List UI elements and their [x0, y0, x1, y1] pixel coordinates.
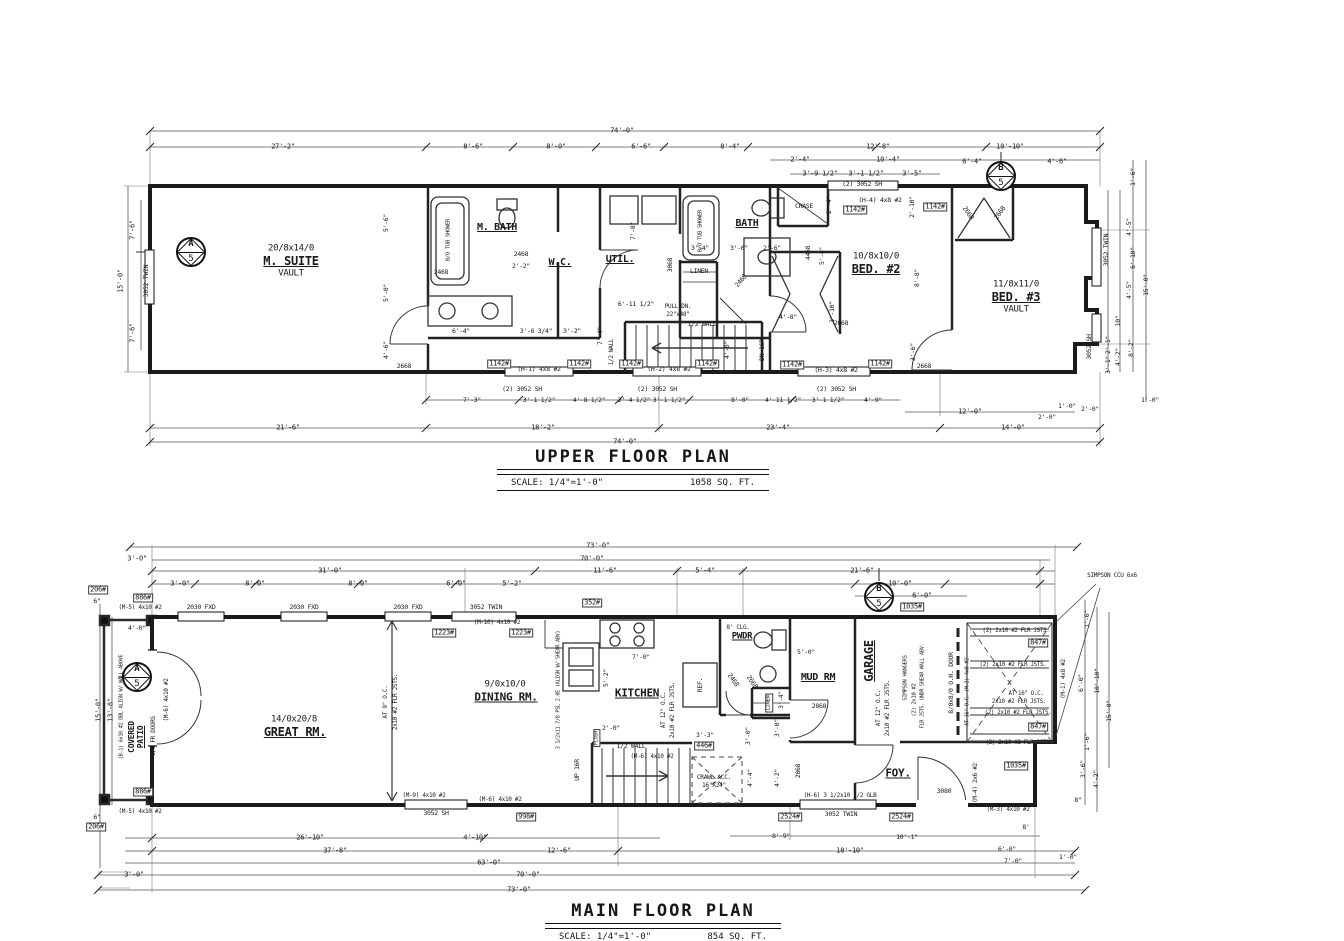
dim-label: 3052 SH [1086, 334, 1093, 359]
dim-label: 1/2 WALL [688, 321, 717, 328]
dim-label: 3'-1 1/2" [523, 397, 556, 404]
dim-label: 7'-6" [130, 323, 137, 343]
dim-label: 4'-10" [463, 835, 487, 842]
dim-label: 2'-0" [1038, 414, 1056, 421]
load-tag: 206# [88, 586, 108, 595]
load-tag: LINEN [765, 693, 773, 712]
main-plan-title: MAIN FLOOR PLAN [545, 901, 781, 921]
dim-label: 3'-1 1/2" [848, 171, 883, 178]
load-tag: 847# [1028, 723, 1048, 732]
dim-label: 3'-6 3/4" [520, 328, 553, 335]
dim-label: (H-4) 4x8 #2 [858, 197, 901, 204]
dim-label: 14/0x20/8 [271, 716, 317, 725]
dim-label: 10'-1" [896, 834, 918, 841]
dim-label: 2'-6" [763, 245, 781, 252]
dim-label: 3080 [937, 788, 951, 795]
dim-label: 21'-6" [850, 568, 874, 575]
dim-label: 73'-0" [507, 887, 531, 894]
dim-label: VAULT [278, 270, 304, 279]
dim-label: 4'-0" [128, 625, 146, 632]
dim-label: 2468 [726, 672, 740, 688]
dim-label: 3'-3" [696, 732, 714, 739]
dim-label: 2'-4" [826, 196, 833, 214]
dim-label: 2868 [795, 764, 802, 778]
dim-label: 4'-8" [779, 314, 797, 321]
dim-label: 7'-6" [130, 220, 137, 240]
dim-label: (2) 2x10 #2 FLR JSTS. [983, 629, 1050, 635]
dim-label: 16"X24" [702, 783, 726, 789]
dim-label: 4'-2" [774, 769, 781, 787]
dim-label: 6'-4" [962, 159, 982, 166]
upper-title-block: UPPER FLOOR PLAN SCALE: 1/4"=1'-0" 1058 … [497, 447, 769, 491]
dim-label: 70'-0" [580, 556, 604, 563]
dim-label: 2868 [812, 703, 826, 710]
dim-label: 11'-6" [593, 568, 617, 575]
dim-label: 12'-8" [866, 144, 890, 151]
dim-label: 13'-8" [108, 698, 115, 722]
dim-label: AT 12" O.C. [661, 692, 667, 728]
dim-label: 1'-0" [1141, 397, 1159, 404]
dim-label: 3'-9 1/2" [802, 171, 837, 178]
dim-label: 2x10 #2 FLR JSTS. [670, 682, 676, 738]
dim-label: 3 1/2x11 7/8 PSL 2.0E (ALIGN W/ SHEAR AB… [556, 631, 561, 750]
dim-label: 3'-0" [774, 719, 781, 737]
dim-label: 2x10 #2 FLR JSTS. [393, 674, 399, 730]
dim-label: 15'-0" [118, 269, 125, 293]
dim-label: 14'-0" [1001, 425, 1025, 432]
dim-label: 74'-0" [610, 128, 634, 135]
load-tag: 1223# [509, 629, 533, 638]
dim-label: (H-3) 4x8 #2 [814, 367, 857, 374]
dim-label: 2030 FXD [187, 604, 216, 611]
load-tag: FLUSH [593, 729, 600, 747]
dim-label: 1/2 WALL [609, 339, 615, 366]
dim-label: (M-5) 4x10 #2 [118, 809, 161, 815]
room-label: BED. #2 [852, 263, 900, 275]
load-tag: 352# [582, 599, 602, 608]
dim-label: 3052 SH [423, 810, 448, 817]
dim-label: (2) 3052 SH [816, 386, 856, 393]
dim-label: 2668 [917, 363, 931, 370]
dim-label: 1'-6" [1084, 733, 1091, 751]
dim-label: UP 16R [574, 759, 581, 781]
dim-label: 6'-6" [631, 144, 651, 151]
dim-label: 5'-2" [502, 581, 522, 588]
drawing-sheet: 74'-0"27'-2"8'-6"8'-0"6'-6"8'-4"12'-8"10… [0, 0, 1344, 941]
dim-label: 12'-0" [958, 409, 982, 416]
section-marker: A5 [122, 662, 152, 692]
load-tag: 2524# [889, 813, 913, 822]
main-plan-scale: SCALE: 1/4"=1'-0" [559, 932, 651, 941]
dim-label: 22"x48" [666, 312, 689, 318]
room-label: GREAT RM. [264, 726, 326, 738]
dim-label: 3'-0" [124, 872, 144, 879]
dim-label: 3'-0" [170, 581, 190, 588]
dim-label: 4'-2" [1115, 348, 1122, 366]
dim-label: 4'-2" [1093, 770, 1100, 788]
dim-label: (2) 2x10 #2 [912, 683, 918, 716]
dim-label: 2'-0" [1081, 406, 1099, 413]
dim-label: (2) 3052 SH [502, 386, 542, 393]
upper-plan-area: 1058 SQ. FT. [690, 478, 755, 488]
dim-label: 2668 [745, 674, 759, 690]
room-label: BATH [736, 219, 759, 229]
dim-label: 2468 [514, 251, 528, 258]
dim-label: 8/0x8/0 O.H. DOOR [948, 652, 955, 713]
dim-label: AT 16" O.C. (M-2) 4x8 #2 [965, 658, 970, 726]
dim-label: (M-6) 4x10 #2 [164, 678, 170, 721]
dim-label: VAULT [1003, 306, 1029, 315]
dim-label: (H-6) 3 1/2x10 1/2 GLB [804, 793, 877, 799]
dim-label: 4'-9" [864, 397, 882, 404]
dim-label: LINEN [690, 268, 708, 275]
dim-label: (M-3) 4x10 #2 [986, 807, 1029, 813]
dim-label: 5'-2" [603, 669, 610, 687]
room-label: PATIO [137, 726, 145, 749]
dim-label: 5'-6" [383, 214, 390, 232]
dim-label: 3'-4" [778, 691, 785, 709]
dim-label: REF. [697, 678, 704, 692]
dim-label: 2'-1" [1105, 336, 1112, 354]
dim-label: 7'-0" [1004, 858, 1022, 865]
dim-label: 18'-10" [836, 848, 863, 855]
dim-label: 1/2 WALL [617, 743, 646, 750]
dim-label: 27'-2" [271, 144, 295, 151]
dim-label: 8'-6" [463, 144, 483, 151]
dim-label: 6'-4" [452, 328, 470, 335]
upper-plan-scale: SCALE: 1/4"=1'-0" [511, 478, 603, 488]
dim-label: 5'-4" [695, 568, 715, 575]
dim-label: 10" [1115, 316, 1122, 327]
dim-label: 10'-4" [876, 157, 900, 164]
load-tag: 1223# [432, 629, 456, 638]
dim-label: 4'-4" [747, 769, 754, 787]
room-label: GARAGE [863, 640, 875, 682]
load-tag: 1035# [900, 603, 924, 612]
dim-label: 6'-0" [998, 846, 1016, 853]
dim-label: 4'-6" [383, 341, 390, 359]
load-tag: 1035# [1004, 762, 1028, 771]
dim-label: 4'-6" [1047, 159, 1067, 166]
dim-label: 3'-1 1/2" [653, 397, 686, 404]
upper-title-sub: SCALE: 1/4"=1'-0" 1058 SQ. FT. [497, 475, 769, 491]
dim-label: 8'-0" [348, 581, 368, 588]
dim-label: 74'-0" [613, 439, 637, 446]
dim-label: AT 16" O.C. [1008, 692, 1043, 698]
dim-label: 3'-4" [691, 245, 709, 252]
dim-label: 2668 [993, 205, 1007, 221]
upper-plan-title: UPPER FLOOR PLAN [497, 447, 769, 467]
dim-label: 2'-4 1/2" [618, 397, 651, 404]
load-tag: 1142# [567, 360, 591, 369]
dim-label: 2x10 #2 FLR JSTS. [885, 680, 891, 736]
dim-label: 9/0x10/0 [485, 681, 526, 690]
load-tag: 446# [694, 742, 714, 751]
dim-label: 7'-0" [632, 654, 650, 661]
dim-label: DN 16R [759, 339, 766, 361]
dim-label: 70'-0" [516, 872, 540, 879]
dim-label: 8' CLG. [726, 625, 749, 631]
load-tag: 1142# [923, 203, 947, 212]
dim-label: 6/0 FR DOORS [151, 716, 157, 756]
dim-label: 15'-0" [1143, 274, 1150, 296]
room-label: BED. #3 [992, 291, 1040, 303]
dim-label: 2'-2" [512, 263, 530, 270]
dim-label: 4'-0" [724, 341, 731, 359]
load-tag: 1142# [695, 360, 719, 369]
dim-label: (H-2) 4x8 #2 [647, 366, 690, 373]
dim-label: 5'-4" [819, 247, 826, 265]
dim-label: 6'-0" [446, 581, 466, 588]
dim-label: 2668 [834, 320, 848, 327]
dim-label: 2468 [434, 269, 448, 276]
dim-label: (M-5) 4x10 #2 [118, 605, 161, 611]
dim-label: 26'-10" [296, 835, 323, 842]
dim-label: 3052 TWIN [825, 811, 858, 818]
dim-label: 4468 [805, 246, 812, 260]
dim-label: 18'-2" [531, 425, 555, 432]
dim-label: 2668 [397, 363, 411, 370]
dim-label: (M-10) 4x10 #2 [474, 620, 520, 626]
load-tag: 886# [133, 788, 153, 797]
dim-label: 3'-2" [563, 328, 581, 335]
load-tag: 206# [86, 823, 106, 832]
dim-label: 3052 TWIN [1103, 234, 1110, 267]
dim-label: 4'-5" [1126, 281, 1133, 299]
dim-label: 8" [1074, 797, 1081, 804]
dim-label: 4'-11 1/2" [765, 397, 801, 404]
dim-label: 10'-10" [1094, 668, 1101, 693]
room-label: FOY. [885, 768, 910, 779]
dim-label: 6'-0" [912, 593, 932, 600]
room-label: M. BATH [477, 223, 517, 233]
dim-label: (2) 2x10 #2 FLR JSTS. [986, 741, 1053, 747]
dim-label: 8'-0" [546, 144, 566, 151]
section-marker: B5 [986, 161, 1016, 191]
room-label: M. SUITE [263, 255, 318, 267]
load-tag: 1142# [487, 360, 511, 369]
dim-label: 3052 TWIN [470, 604, 503, 611]
dim-label: 2668 [961, 205, 975, 221]
room-label: PWDR [732, 633, 752, 642]
dim-label: 3'-6" [730, 245, 748, 252]
dim-label: 7'-8" [630, 222, 637, 240]
dim-label: 3'-0" [127, 556, 147, 563]
load-tag: 847# [1028, 639, 1048, 648]
dim-label: 2030 FXD [394, 604, 423, 611]
dim-label: 8'-2" [1128, 339, 1135, 357]
dim-label: 21'-6" [276, 425, 300, 432]
main-title-block: MAIN FLOOR PLAN SCALE: 1/4"=1'-0" 854 SQ… [545, 901, 781, 941]
room-label: MUD RM [801, 673, 835, 683]
section-marker: B5 [864, 582, 894, 612]
load-tag: 2524# [778, 813, 802, 822]
dim-label: 3'-1 1/2" [812, 397, 845, 404]
dim-label: 5'-0" [797, 649, 815, 656]
dim-label: 63'-0" [477, 860, 501, 867]
dim-label: 8'-0" [245, 581, 265, 588]
dim-label: 37'-8" [323, 848, 347, 855]
dim-label: (M-4) 2x6 #2 [973, 763, 979, 803]
dim-label: 2'-0" [602, 725, 620, 732]
dim-label: 6'-0" [1078, 674, 1085, 692]
load-tag: 1142# [780, 361, 804, 370]
dim-label: 3'-6" [910, 343, 917, 361]
main-plan-area: 854 SQ. FT. [707, 932, 767, 941]
dim-label: 10/8x10/0 [853, 253, 899, 262]
dim-label: FLR JSTS. UNDR SHEAR WALL ABV. [920, 644, 925, 729]
dim-label: 6'-11 1/2" [618, 301, 654, 308]
dim-label: (2) 2x10 #2 FLR JSTS. [980, 663, 1047, 669]
dim-label: B/O TUB SHOWER [446, 219, 452, 261]
dim-label: PULL DN. [665, 304, 692, 310]
room-label: DINING RM. [474, 692, 537, 703]
load-tag: 1142# [619, 360, 643, 369]
dim-label: (M-9) 4x10 #2 [402, 793, 445, 799]
dim-label: 7'-3" [463, 397, 481, 404]
dim-label: 2468 [734, 273, 748, 288]
dim-label: 12'-6" [547, 848, 571, 855]
load-tag: 1142# [843, 206, 867, 215]
dim-label: 1'-6" [1084, 610, 1091, 628]
dim-label: AT 9" O.C. [383, 685, 389, 718]
dim-label: 7'-4" [597, 327, 604, 345]
dim-label: 4'-5" [1126, 218, 1133, 236]
load-tag: 1142# [868, 360, 892, 369]
dim-label: AT 12" O.C. [876, 690, 882, 726]
dim-label: (M-1) 4x8 #2 [1061, 659, 1067, 699]
dim-label: 73'-0" [586, 543, 610, 550]
dim-label: 1'-0" [1059, 854, 1077, 861]
dim-label: 6'-10" [1130, 247, 1137, 269]
dim-label: 8'-9" [772, 833, 790, 840]
room-label: W.C. [549, 258, 572, 268]
dim-label: 2'-10" [909, 196, 916, 218]
dim-label: SIMPSON HANGERS [903, 655, 909, 700]
dim-label: 1'-0" [1058, 403, 1076, 410]
dim-label: SIMPSON CCU 6x6 [1087, 573, 1137, 579]
dim-label: 5'-0" [383, 284, 390, 302]
dim-label: 3'-5" [902, 171, 922, 178]
main-title-sub: SCALE: 1/4"=1'-0" 854 SQ. FT. [545, 929, 781, 941]
dim-label: 8'-4" [720, 144, 740, 151]
dim-label: 3'-1" [1105, 356, 1112, 374]
dim-label: (2) 2x10 #2 FLR JSTS. [985, 711, 1052, 717]
load-tag: 886# [133, 594, 153, 603]
dim-label: 3068 [667, 258, 674, 272]
dim-label: 23'-4" [766, 425, 790, 432]
dim-label: CHASE [795, 203, 813, 210]
room-label: COVERED [128, 721, 136, 753]
dim-label: (M-6) 4x10 #2 [630, 754, 673, 760]
dim-label: 2x10 #2 FLR JSTS. [992, 700, 1046, 706]
dim-label: 8'-8" [914, 269, 921, 287]
dim-label: 31'-0" [318, 568, 342, 575]
dim-label: 6" [93, 814, 100, 821]
section-marker: A5 [176, 237, 206, 267]
dim-label: 4'-8 1/2" [573, 397, 606, 404]
dim-label: 1'-6" [1130, 168, 1137, 186]
dim-label: 2030 FXD [290, 604, 319, 611]
dim-label: 8' [1022, 824, 1029, 831]
room-label: KITCHEN [615, 688, 659, 699]
dim-label: 3052 TWIN [143, 265, 150, 298]
dim-label: (2) 3052 SH [637, 386, 677, 393]
dim-label: 15'-0" [1106, 700, 1113, 722]
dim-label: (M-6) 4x10 #2 [478, 797, 521, 803]
dim-label: 15'-0" [96, 698, 103, 722]
dim-label: (H-1) 4x8 #2 [517, 366, 560, 373]
load-tag: 998# [516, 813, 536, 822]
dim-label: 8'-0" [731, 397, 749, 404]
dim-label: 10'-10" [996, 144, 1023, 151]
dim-label: 3'-0" [745, 727, 752, 745]
dim-label: CRAWL ACC. [697, 775, 731, 781]
room-label: UTIL. [606, 255, 635, 265]
dim-label: 3'-6" [1080, 760, 1087, 778]
dim-label: 20/8x14/0 [268, 245, 314, 254]
dim-label: 2'-4" [790, 157, 810, 164]
dim-label: (2) 3052 SH [842, 181, 882, 188]
dim-label: 6" [93, 598, 100, 605]
dim-label: 11/8x11/0 [993, 281, 1039, 290]
